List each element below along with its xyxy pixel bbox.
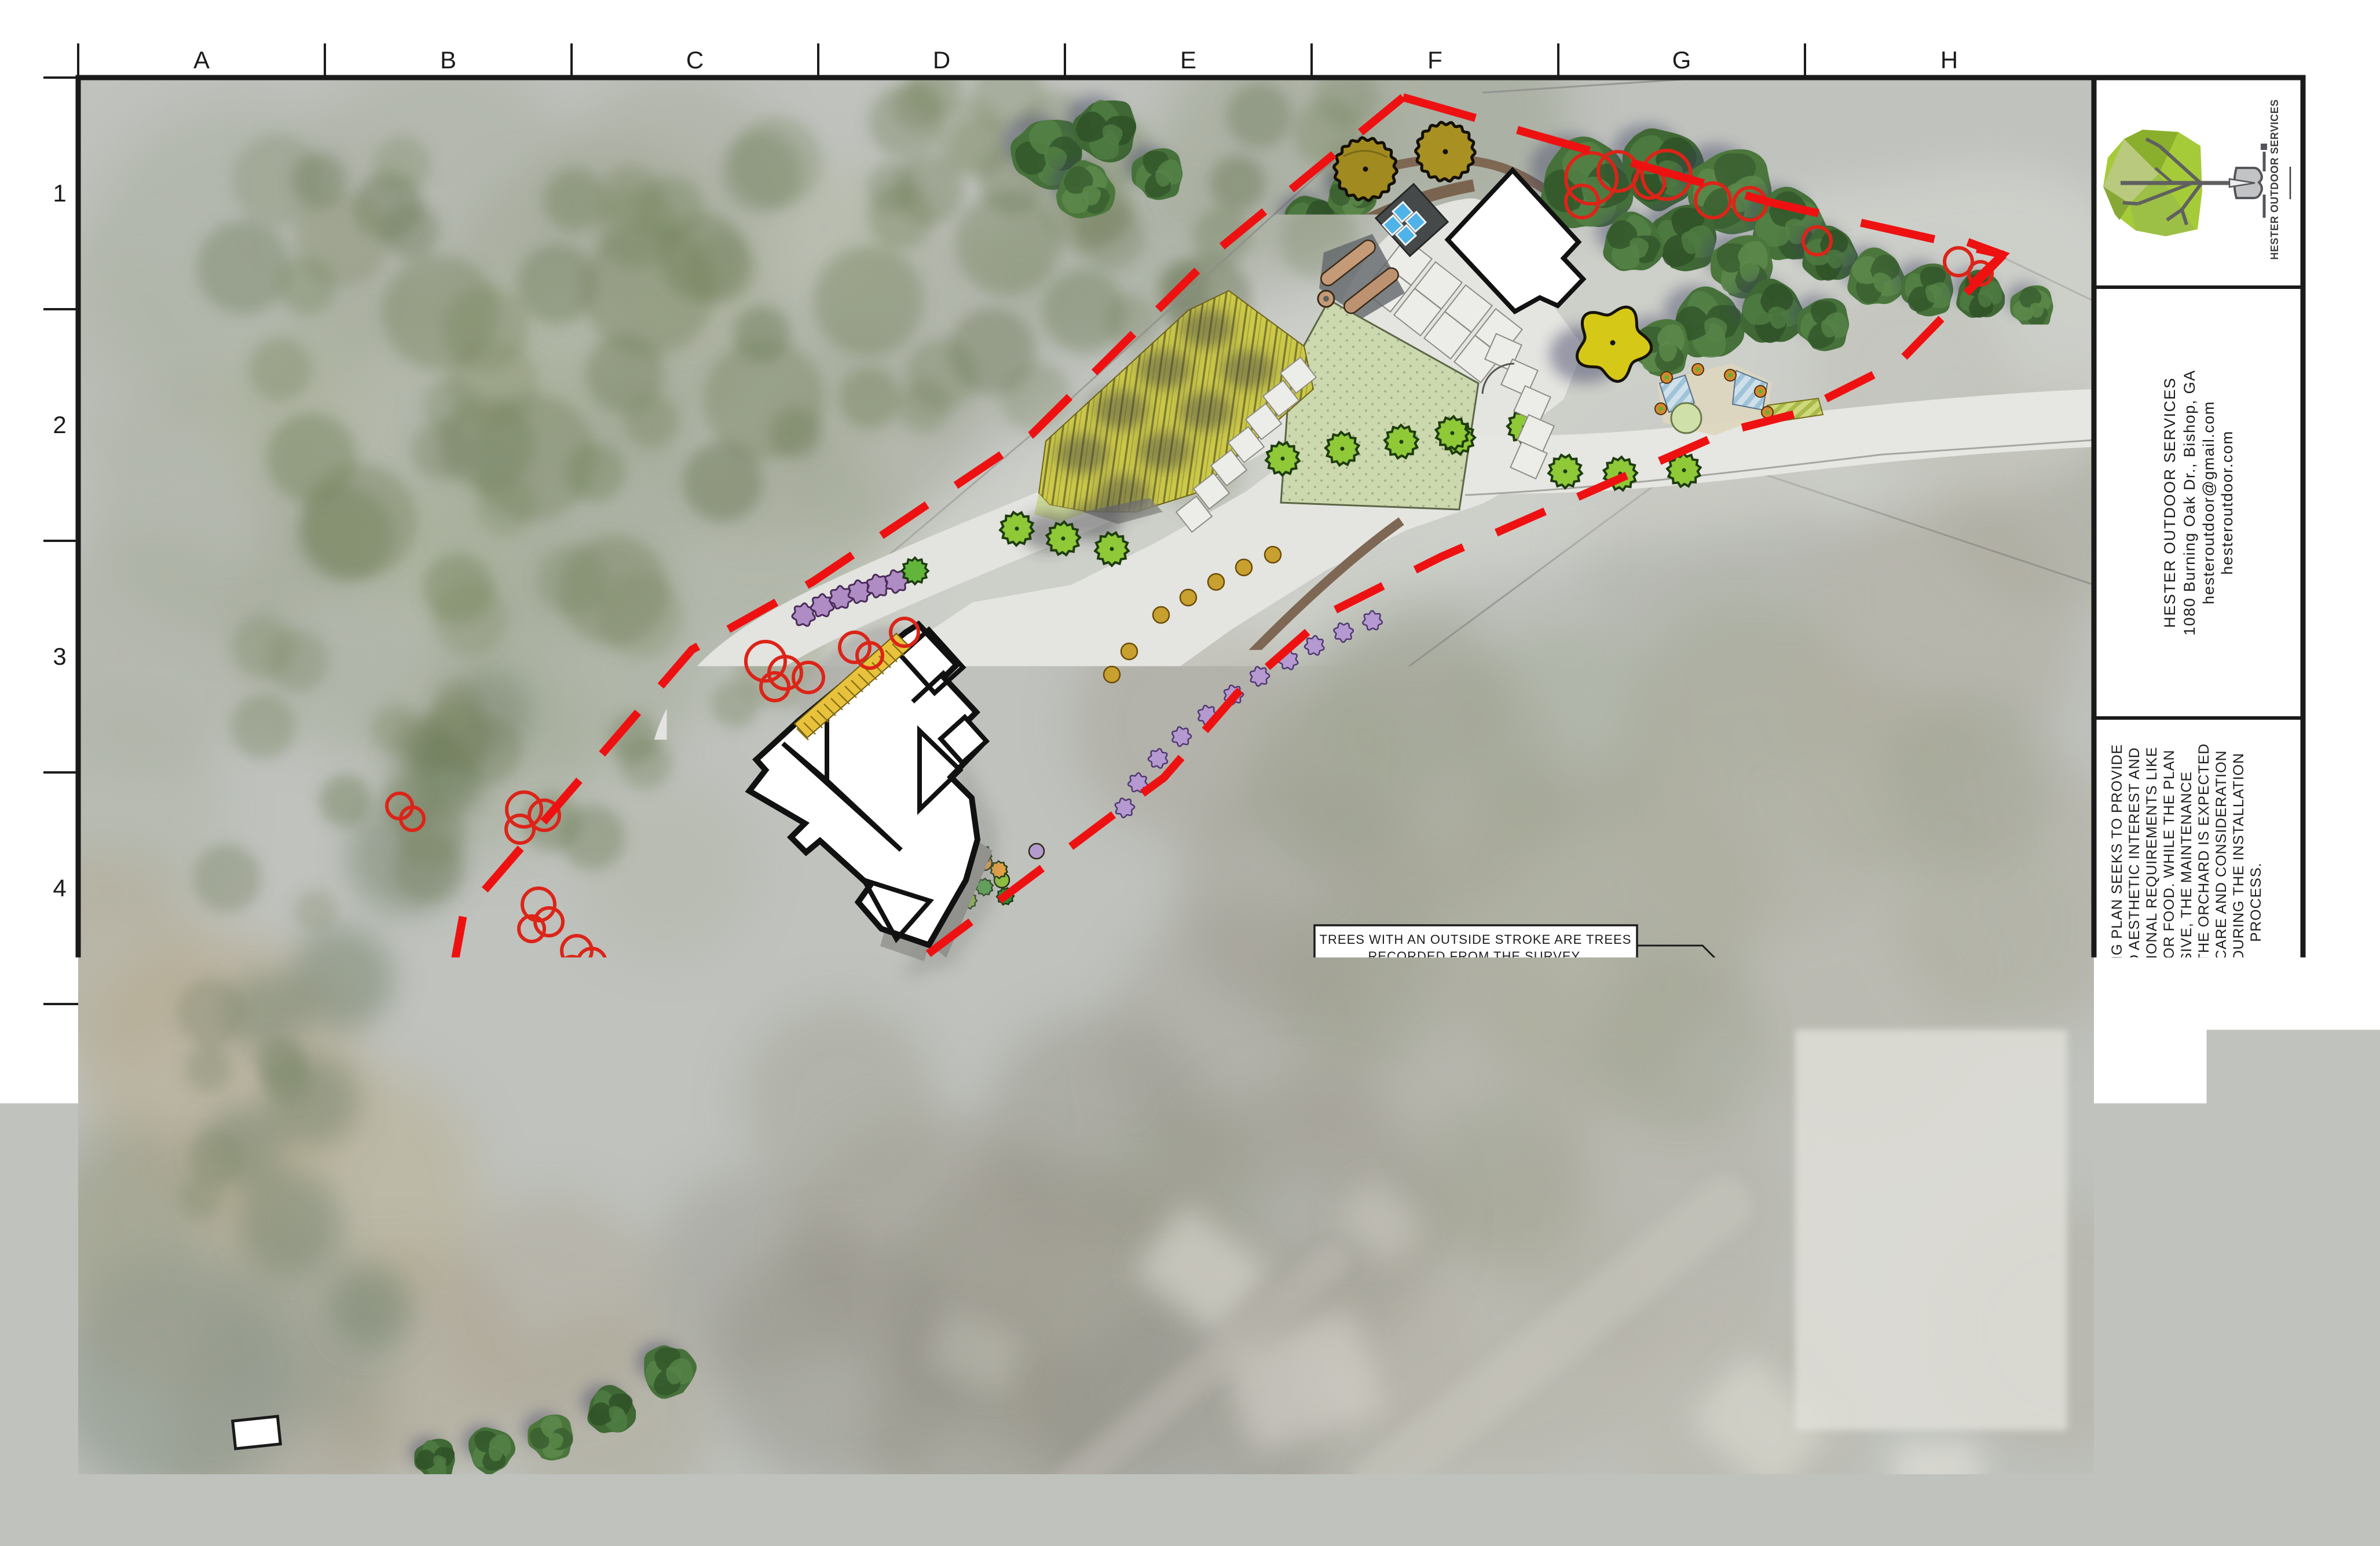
svg-text:SCREENING OR FOOD. WHILE THE P: SCREENING OR FOOD. WHILE THE PLAN [2161,749,2177,1054]
svg-text:4: 4 [53,874,66,902]
svg-text:PLAN: PLAN [2164,1270,2233,1298]
svg-text:3: 3 [53,643,66,670]
svg-text:H: H [1940,46,1958,74]
svg-text:60: 60 [1667,1368,1690,1392]
svg-text:RECORDED FROM THE SURVEY.: RECORDED FROM THE SURVEY. [1368,949,1583,963]
svg-text:IS ADVISED DURING THE INSTALLA: IS ADVISED DURING THE INSTALLATION [2231,753,2247,1052]
svg-text:IS EXTENSIVE, THE MAINTENANCE: IS EXTENSIVE, THE MAINTENANCE [2178,771,2195,1033]
svg-text:OUTSIDE OF THE ORCHARD IS EXPE: OUTSIDE OF THE ORCHARD IS EXPECTED [2196,743,2212,1061]
svg-text:PROCESS.: PROCESS. [2248,862,2264,941]
svg-text:THE RED CIRCLE DENOTES A PROJE: THE RED CIRCLE DENOTES A PROJECTED [1342,983,1625,997]
svg-text:YEAR-ROUND AESTHETIC INTEREST: YEAR-ROUND AESTHETIC INTEREST AND [2126,747,2143,1057]
svg-text:2: 2 [53,411,66,438]
svg-text:1080 Burning Oak Dr., Bish: 1080 Burning Oak Dr., Bishop, GA [2181,369,2198,635]
svg-text:CHECKED BY:: CHECKED BY: [2104,1126,2201,1142]
svg-text:HESTER OUTDOOR SERVICES: HESTER OUTDOOR SERVICES [2161,377,2178,628]
svg-text:03/04/25: 03/04/25 [2236,1153,2292,1168]
svg-text:L106: L106 [2148,1400,2240,1444]
svg-text:TREES WITH AN OUTSIDE STROKE A: TREES WITH AN OUTSIDE STROKE ARE TREES [1320,932,1632,947]
svg-text:DATE:: DATE: [2104,1153,2145,1168]
svg-text:CRITICAL ROOT ZONE.: CRITICAL ROOT ZONE. [1408,999,1559,1014]
svg-text:TO BE LOW. CARE AND CONSIDERAT: TO BE LOW. CARE AND CONSIDERATION [2213,750,2229,1054]
svg-text:0: 0 [1810,1368,1822,1392]
svg-text:6: 6 [53,1341,66,1368]
svg-text:A: A [193,46,210,74]
svg-text:E: E [1180,46,1196,74]
svg-text:hesteroutdoor@gmail.com: hesteroutdoor@gmail.com [2200,401,2217,605]
svg-text:MEET FUNCTIONAL REQUIREMENTS L: MEET FUNCTIONAL REQUIREMENTS LIKE [2144,746,2160,1057]
svg-text:NOAH DILDAY: NOAH DILDAY [2200,1126,2293,1141]
svg-text:5: 5 [53,1106,66,1133]
svg-text:C: C [686,46,704,74]
svg-text:hesteroutdoor.com: hesteroutdoor.com [2218,430,2236,574]
svg-text:G: G [1672,46,1691,74]
svg-text:HESTER OUTDOOR SERVICES: HESTER OUTDOOR SERVICES [2269,99,2280,259]
svg-text:30: 30 [1735,1368,1759,1392]
svg-text:15: 15 [1771,1368,1795,1392]
svg-text:D: D [933,46,950,74]
svg-text:SHEET NUMBER:: SHEET NUMBER: [2112,1371,2246,1387]
svg-text:NOAH DILDAY: NOAH DILDAY [2194,1098,2286,1113]
svg-text:B: B [440,46,456,74]
svg-text:F: F [1427,46,1442,74]
svg-text:1: 1 [53,179,66,207]
svg-text:60: 60 [1943,1368,1967,1392]
svg-text:DRAWN BY:: DRAWN BY: [2104,1098,2184,1113]
svg-text:THIS PLANTING PLAN SEEKS TO PR: THIS PLANTING PLAN SEEKS TO PROVIDE [2109,744,2125,1061]
svg-text:PLANTING: PLANTING [2132,1243,2264,1271]
svg-text:SHEET TITLE:: SHEET TITLE: [2112,1186,2221,1202]
svg-text:30: 30 [1879,1368,1902,1392]
